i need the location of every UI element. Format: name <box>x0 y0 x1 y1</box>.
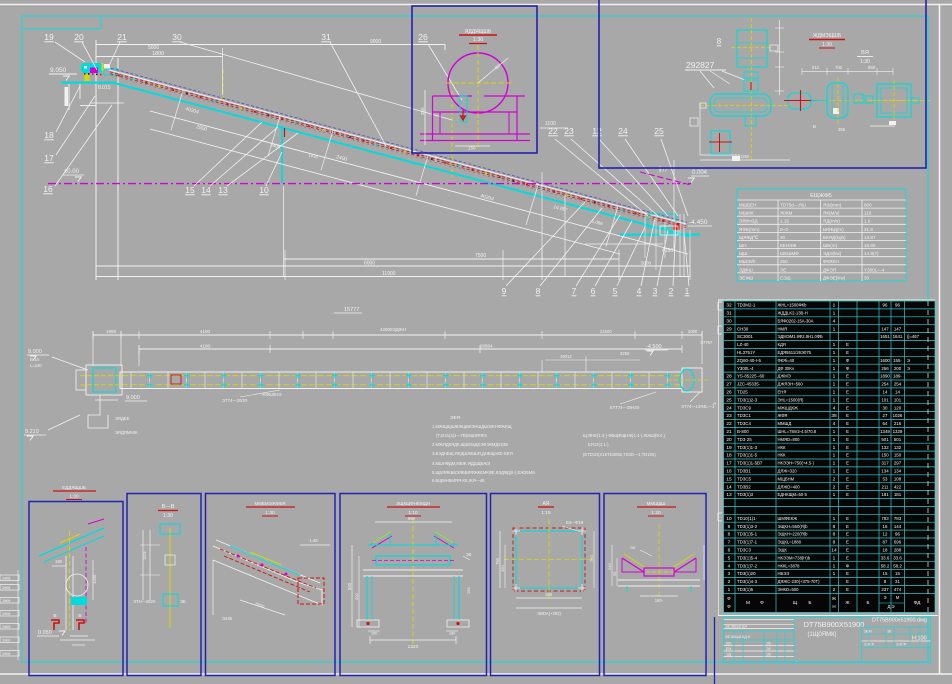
svg-text:96: 96 <box>883 303 888 308</box>
svg-text:4: 4 <box>833 421 836 427</box>
svg-text:4100: 4100 <box>200 329 211 334</box>
svg-text:L=120: L=120 <box>30 363 42 368</box>
svg-text:TD3(1)5-4: TD3(1)5-4 <box>737 555 758 560</box>
svg-text:2: 2 <box>833 484 836 490</box>
svg-text:·1.45·: ·1.45· <box>308 538 319 543</box>
svg-text:ДЯЖ=320: ДЯЖ=320 <box>778 469 798 474</box>
svg-text:4: 4 <box>833 405 836 411</box>
svg-text:B: B <box>53 613 56 619</box>
svg-text:15: 15 <box>185 185 195 195</box>
svg-text:ЭЩКH=220(Я)b: ЭЩКH=220(Я)b <box>778 532 809 537</box>
svg-text:28: 28 <box>726 374 732 380</box>
svg-text:760: 760 <box>589 555 594 562</box>
svg-text:5: 5 <box>613 286 618 296</box>
svg-text:613: 613 <box>812 65 820 70</box>
svg-text:ZQ60-40-I-5: ZQ60-40-I-5 <box>737 358 761 363</box>
svg-text:ФД: ФД <box>914 600 921 606</box>
svg-text:B4—Φ18: B4—Φ18 <box>566 520 584 525</box>
svg-text:ЭTH—2020·: ЭTH—2020· <box>133 599 157 604</box>
svg-text:БЯФ0202-15A-30A: БЯФ0202-15A-30A <box>778 318 814 323</box>
svg-text:ММБМЭЖФБЯ: ММБМЭЖФБЯ <box>254 501 285 506</box>
svg-text:31: 31 <box>726 311 732 317</box>
svg-text:1: 1 <box>833 429 836 435</box>
svg-text:ЭT74—14Я4L—1·: ЭT74—14Я4L—1· <box>681 404 716 409</box>
svg-text:0.050: 0.050 <box>38 630 52 636</box>
svg-text:Е: Е <box>846 374 849 379</box>
svg-text:1: 1 <box>833 390 836 396</box>
svg-text:181: 181 <box>881 492 889 497</box>
svg-text:ЭЖМ: ЭЖМ <box>2 599 11 603</box>
svg-text:20: 20 <box>726 437 732 443</box>
svg-text:3.БЭДНБЩ,ЯЕДШЖБШЯ,ДНЕЩНКЕ·ЕЕЯ: 3.БЭДНБЩ,ЯЕДШЖБШЯ,ДНЕЩНКЕ·ЕЕЯ <box>432 451 513 456</box>
svg-text:7500: 7500 <box>475 253 486 259</box>
svg-text:8: 8 <box>728 532 731 538</box>
svg-text:НККL=3878: НККL=3878 <box>778 563 801 568</box>
svg-text:Е: Е <box>846 555 849 560</box>
svg-text:101: 101 <box>894 397 902 402</box>
svg-text:95: 95 <box>613 572 617 576</box>
svg-text:ЖДДLK2-13B-H: ЖДДLK2-13B-H <box>778 311 808 316</box>
svg-text:116: 116 <box>864 211 872 216</box>
svg-text:TD3C1: TD3C1 <box>737 413 751 418</box>
svg-text:17: 17 <box>726 461 732 467</box>
svg-text:TD3M2-1: TD3M2-1 <box>737 303 756 308</box>
svg-text:1: 1 <box>833 326 836 332</box>
svg-text:ЭЩКH=550(Я)b: ЭЩКH=550(Я)b <box>778 524 809 529</box>
svg-text:15: 15 <box>883 571 888 576</box>
svg-text:27: 27 <box>883 413 888 418</box>
svg-text:МШМК: МШМК <box>739 211 754 216</box>
svg-text:9: 9 <box>728 524 731 530</box>
svg-text:1329: 1329 <box>893 429 903 434</box>
svg-text:1: 1 <box>833 366 836 372</box>
svg-text:25: 25 <box>726 397 732 403</box>
svg-text:1841: 1841 <box>893 334 903 339</box>
svg-text:0~3: 0~3 <box>780 227 788 232</box>
svg-text:23: 23 <box>564 126 574 136</box>
svg-text:TD3(1)3-2: TD3(1)3-2 <box>737 524 758 529</box>
svg-text:250: 250 <box>780 259 788 264</box>
svg-text:НМЯ: НМЯ <box>778 326 788 331</box>
svg-text:B: B <box>813 124 816 129</box>
svg-text:Е: Е <box>846 469 849 474</box>
svg-text:Е: Е <box>846 453 849 458</box>
svg-text:64: 64 <box>883 421 888 426</box>
svg-text:TD25: TD25 <box>737 390 748 395</box>
svg-text:155·: 155· <box>893 358 902 363</box>
svg-text:1220: 1220 <box>408 644 419 650</box>
svg-text:AЯ: AЯ <box>543 501 550 507</box>
svg-text:216: 216 <box>894 421 902 426</box>
svg-text:800: 800 <box>864 203 872 208</box>
svg-text:Е: Е <box>846 390 849 395</box>
svg-text:Ф: Ф <box>760 600 764 606</box>
svg-text:Э: Э <box>907 358 910 363</box>
svg-text:26: 26 <box>726 390 732 396</box>
svg-text:Е: Е <box>846 437 849 442</box>
svg-text:ЕНЯ: ЕНЯ <box>778 390 787 395</box>
svg-text:30: 30 <box>883 405 888 410</box>
svg-text:БКЯД(kgh): БКЯД(kgh) <box>823 235 846 240</box>
svg-text:ШФБД(m): ШФБД(m) <box>823 227 844 232</box>
svg-text:CH30: CH30 <box>737 326 749 331</box>
svg-text:ЕДНКЩМ=50·5: ЕДНКЩМ=50·5 <box>778 492 808 497</box>
svg-text:ЭЩКЩФНЕМДН: ЭЩКЩФНЕМДН <box>396 501 430 506</box>
svg-text:1: 1 <box>833 492 836 498</box>
svg-text:ЭНКD=500: ЭНКD=500 <box>778 587 800 592</box>
svg-text:700: 700 <box>835 65 843 70</box>
svg-text:27: 27 <box>726 382 732 388</box>
svg-text:20: 20 <box>74 32 84 42</box>
svg-text:TD3(1)1-5: TD3(1)1-5 <box>737 453 758 458</box>
svg-text:1: 1 <box>833 516 836 522</box>
svg-text:DT75B900X51900: DT75B900X51900 <box>804 620 865 629</box>
svg-text:501: 501 <box>894 437 902 442</box>
svg-text:ЭЕ: ЭЕ <box>766 642 772 646</box>
svg-text:150: 150 <box>881 453 889 458</box>
svg-text:8: 8 <box>536 286 541 296</box>
svg-text:Б: Б <box>808 600 811 606</box>
svg-text:10: 10 <box>726 516 732 522</box>
svg-text:(1Щ0ЯМК): (1Щ0ЯМК) <box>807 632 836 638</box>
svg-text:Щ:ЯНЕ(1:4·)·ФБЩФЩНЖ(1:4·),ЖЖШ(: Щ:ЯНЕ(1:4·)·ФБЩФЩНЖ(1:4·),ЖЖШ(9:4·), <box>583 433 666 438</box>
svg-text:ЩЯФД℃: ЩЯФД℃ <box>739 235 759 240</box>
svg-text:32: 32 <box>726 303 732 309</box>
svg-text:1: 1 <box>833 303 836 309</box>
svg-text:10: 10 <box>259 185 269 195</box>
svg-text:ЭДФШ: ЭДФШ <box>739 267 753 272</box>
svg-text:ЭЕФШ: ЭЕФШ <box>739 275 753 280</box>
svg-text:14: 14 <box>726 484 732 490</box>
svg-text:1:15: 1:15 <box>541 510 551 516</box>
svg-text:Е: Е <box>846 548 849 553</box>
svg-text:317: 317 <box>881 461 889 466</box>
svg-text:25: 25 <box>654 126 664 136</box>
svg-text:1:30: 1:30 <box>822 42 832 48</box>
svg-text:1: 1 <box>685 286 690 296</box>
svg-text:3: 3 <box>728 571 731 577</box>
svg-text:ЭЖМ: ЭЖМ <box>2 576 11 580</box>
svg-text:ШБ(m): ШБ(m) <box>823 243 838 248</box>
svg-text:TD75d—ЯШ: TD75d—ЯШ <box>780 203 806 208</box>
svg-text:DT75B900x51900.dwg: DT75B900x51900.dwg <box>872 618 927 624</box>
svg-text:31: 31 <box>321 32 331 42</box>
svg-text:38: 38 <box>831 413 837 419</box>
svg-text:ММШД: ММШД <box>778 421 792 426</box>
svg-text:783: 783 <box>894 516 902 521</box>
svg-text:ЕМ: ЕМ <box>726 647 731 651</box>
svg-text:TD3(1)1-5B7: TD3(1)1-5B7 <box>737 461 763 466</box>
svg-text:1: 1 <box>833 437 836 443</box>
svg-text:2: 2 <box>669 286 674 296</box>
svg-text:(|=467: (|=467 <box>907 334 920 339</box>
svg-text:(TJ231(4)1—7B)МШФЯФЭ: (TJ231(4)1—7B)МШФЯФЭ <box>436 433 487 438</box>
svg-text:Y300L—4: Y300L—4 <box>864 267 885 272</box>
svg-text:26: 26 <box>418 32 428 42</box>
svg-text:ЭTT4—30/20·: ЭTT4—30/20· <box>222 398 249 403</box>
svg-text:TD3(1)5: TD3(1)5 <box>737 587 754 592</box>
svg-text:1.МЖЩЩШЖЖЩБКЭНШДШЭЖНФЖЕЩ: 1.МЖЩЩШЖЖЩБКЭНШДШЭЖНФЖЕЩ <box>432 424 512 429</box>
svg-text:33.6: 33.6 <box>893 555 902 560</box>
svg-text:8: 8 <box>833 540 836 546</box>
svg-text:TD3(1)4-3: TD3(1)4-3 <box>737 579 758 584</box>
svg-text:ЭД: ЭД <box>726 653 731 657</box>
svg-text:Е: Е <box>846 540 849 545</box>
svg-text:1: 1 <box>833 382 836 388</box>
svg-text:7: 7 <box>728 540 731 546</box>
svg-text:21: 21 <box>117 32 127 42</box>
svg-text:19: 19 <box>44 32 54 42</box>
svg-text:58.2: 58.2 <box>893 563 902 568</box>
svg-text:Е: Е <box>846 429 849 434</box>
svg-text:ЭЖМ: ЭЖМ <box>2 612 11 616</box>
svg-text:ЭЩК: ЭЩК <box>778 548 788 553</box>
svg-text:8: 8 <box>717 37 722 46</box>
svg-text:Е: Е <box>846 397 849 402</box>
svg-text:TD3C4: TD3C4 <box>737 421 751 426</box>
svg-text:Е: Е <box>846 587 849 592</box>
svg-text:B: B <box>78 613 81 619</box>
svg-text:4: 4 <box>637 286 642 296</box>
svg-text:ETT74—20Н20·: ETT74—20Н20· <box>610 405 641 410</box>
svg-text:Н: Н <box>832 604 835 609</box>
svg-text:М: М <box>746 600 750 606</box>
svg-text:1: 1 <box>833 453 836 459</box>
svg-text:1:30: 1:30 <box>473 37 484 43</box>
svg-text:Э Ж Ф: Э Ж Ф <box>896 643 906 647</box>
svg-text:НКЭЭМ=738(Н)b: НКЭЭМ=738(Н)b <box>778 555 811 560</box>
svg-text:14: 14 <box>201 185 211 195</box>
svg-text:4100·: 4100· <box>200 344 212 349</box>
svg-text:1.6: 1.6 <box>864 219 871 224</box>
svg-text:16014: 16014 <box>560 354 572 359</box>
svg-text:14: 14 <box>883 390 888 395</box>
svg-text:ФКЯi=40: ФКЯi=40 <box>778 358 795 363</box>
svg-text:ММШДШ: ММШДШ <box>647 501 666 506</box>
svg-text:ШЕШМФ: ШЕШМФ <box>780 251 799 256</box>
svg-text:200: 200 <box>354 593 359 600</box>
svg-text:МЩБНМ: МЩБНМ <box>778 476 795 481</box>
svg-text:TD3(1)20: TD3(1)20 <box>737 571 756 576</box>
svg-text:180: 180 <box>55 559 63 564</box>
svg-text:134: 134 <box>881 469 889 474</box>
svg-text:7: 7 <box>572 286 577 296</box>
svg-text:1898: 1898 <box>106 329 117 334</box>
svg-text:1: 1 <box>833 342 836 348</box>
svg-text:Д Э: Д Э <box>887 604 894 609</box>
svg-text:96: 96 <box>895 303 900 308</box>
svg-text:240: 240 <box>607 563 612 570</box>
svg-text:237: 237 <box>881 587 889 592</box>
svg-text:9.050: 9.050 <box>50 67 67 74</box>
svg-text:Е: Е <box>846 350 849 355</box>
svg-text:ЭЖМ: ЭЖМ <box>2 625 11 629</box>
svg-text:783: 783 <box>881 516 889 521</box>
svg-text:МШЭt/h: МШЭt/h <box>739 259 756 264</box>
svg-text:15: 15 <box>895 571 900 576</box>
svg-text:4.МШНФДМ,МБЖ·ЯДДЩБЖЭ: 4.МШНФДМ,МБЖ·ЯДДЩБЖЭ <box>432 461 490 466</box>
svg-text:53: 53 <box>883 476 888 481</box>
svg-text:НКК: НКК <box>778 445 786 450</box>
svg-text:1: 1 <box>833 563 836 569</box>
svg-text:1: 1 <box>833 571 836 577</box>
svg-text:Э435: Э435 <box>222 616 233 621</box>
svg-text:TD3C9: TD3C9 <box>737 405 751 410</box>
svg-text:8.015: 8.015 <box>98 85 111 91</box>
svg-text:Е: Е <box>846 413 849 418</box>
svg-text:160: 160 <box>545 592 553 597</box>
svg-text:200: 200 <box>894 366 902 371</box>
svg-text:147: 147 <box>881 326 889 331</box>
svg-text:9.210: 9.210 <box>25 429 39 435</box>
svg-text:ДЯЖD=400: ДЯЖD=400 <box>778 484 801 489</box>
svg-text:Е: Е <box>846 382 849 387</box>
svg-text:254: 254 <box>881 382 889 387</box>
svg-text:Е: Е <box>846 405 849 410</box>
svg-text:TD3(1)5-1: TD3(1)5-1 <box>737 532 758 537</box>
svg-text:9000: 9000 <box>370 39 381 45</box>
svg-text:30: 30 <box>172 32 182 42</box>
svg-text:Е: Е <box>846 579 849 584</box>
svg-text:150: 150 <box>894 453 902 458</box>
svg-text:31.8: 31.8 <box>864 227 873 232</box>
svg-text:ЭBDA(+302): ЭBDA(+302) <box>537 611 561 616</box>
svg-text:Э: Э <box>883 595 886 600</box>
svg-text:ЭЕМ: ЭЕМ <box>864 630 872 634</box>
svg-text:42000ЭДЖН: 42000ЭДЖН <box>380 327 406 332</box>
svg-text:474: 474 <box>894 587 902 592</box>
svg-text:14.9(7): 14.9(7) <box>864 251 879 256</box>
svg-text:НКК: НКК <box>778 453 786 458</box>
svg-text:22: 22 <box>548 126 558 136</box>
svg-text:TD3·25: TD3·25 <box>737 437 752 442</box>
svg-text:КЕНЭЖ: КЕНЭЖ <box>780 243 797 248</box>
svg-text:3: 3 <box>653 286 658 296</box>
svg-text:134: 134 <box>894 469 902 474</box>
svg-text:ЭЕ: ЭЕ <box>887 630 892 634</box>
svg-text:13: 13 <box>218 185 228 195</box>
svg-text:181: 181 <box>894 492 902 497</box>
svg-text:ЭЯДЯММЖ: ЭЯДЯММЖ <box>115 430 138 435</box>
svg-text:6: 6 <box>591 286 596 296</box>
svg-text:4: 4 <box>833 318 836 324</box>
svg-text:B—B: B—B <box>162 504 175 510</box>
svg-text:HL3751Y: HL3751Y <box>737 350 755 355</box>
svg-text:НБЭЭ: НБЭЭ <box>778 571 790 576</box>
svg-text:1800: 1800 <box>152 51 164 57</box>
svg-text:1: 1 <box>833 469 836 475</box>
svg-text:1124: 1124 <box>142 551 147 560</box>
svg-text:TD3(1)2-3: TD3(1)2-3 <box>737 397 758 402</box>
svg-text:696: 696 <box>894 540 902 545</box>
svg-text:5: 5 <box>728 555 731 561</box>
svg-text:96: 96 <box>895 532 900 537</box>
svg-text:B-800: B-800 <box>737 429 749 434</box>
svg-text:9: 9 <box>502 286 507 296</box>
svg-text:16: 16 <box>883 524 888 529</box>
svg-text:LZ-40: LZ-40 <box>737 342 749 347</box>
svg-text:24: 24 <box>726 405 732 411</box>
svg-text:750: 750 <box>495 557 500 565</box>
svg-text:4: 4 <box>728 563 731 569</box>
svg-text:2.МЖЯДКЯДК,ЩШЕМДЕЭФЭКМД223Б: 2.МЖЯДКЯДК,ЩШЕМДЕЭФЭКМД223Б <box>432 442 508 447</box>
svg-text:ЭДМЭМ1.9Ф2.8Н1.0ФБ: ЭДМЭМ1.9Ф2.8Н1.0ФБ <box>778 334 824 339</box>
svg-text:ШНL=78m3-4.5/70.8: ШНL=78m3-4.5/70.8 <box>778 429 817 434</box>
svg-text:ЕЩЖФБ: ЕЩЖФБ <box>810 193 832 199</box>
svg-text:8: 8 <box>833 524 836 530</box>
svg-text:30: 30 <box>780 235 786 240</box>
svg-text:266: 266 <box>881 366 889 371</box>
svg-text:ЖДМЭЩШБ: ЖДМЭЩШБ <box>813 33 842 39</box>
svg-text:ЖЖМ: ЖЖМ <box>780 211 792 216</box>
svg-text:2000: 2000 <box>688 329 698 334</box>
svg-text:0.004: 0.004 <box>692 170 708 176</box>
svg-text:BЯ: BЯ <box>861 50 869 56</box>
svg-text:11900: 11900 <box>382 271 396 277</box>
svg-text:14: 14 <box>895 390 900 395</box>
svg-text:15.65: 15.65 <box>864 243 876 248</box>
svg-text:1100: 1100 <box>545 121 556 127</box>
svg-text:15: 15 <box>726 476 732 482</box>
svg-text:8: 8 <box>833 532 836 538</box>
svg-text:144: 144 <box>894 524 902 529</box>
svg-text:23: 23 <box>726 413 732 419</box>
svg-text:TD10(1)1·: TD10(1)1· <box>737 516 757 521</box>
svg-text:1: 1 <box>833 445 836 451</box>
svg-text:147: 147 <box>894 326 902 331</box>
svg-text:18: 18 <box>44 130 54 140</box>
svg-text:422: 422 <box>894 484 902 489</box>
svg-text:1026: 1026 <box>893 413 903 418</box>
svg-text:29: 29 <box>726 326 732 332</box>
svg-text:ДЖМЭ: ДЖМЭ <box>778 374 791 379</box>
svg-text:16: 16 <box>43 184 53 194</box>
svg-text:254: 254 <box>894 382 902 387</box>
svg-text:Б: Б <box>867 600 870 605</box>
svg-text:190: 190 <box>500 565 505 572</box>
svg-text:ШМФЕКЖ: ШМФЕКЖ <box>778 516 798 521</box>
svg-text:888: 888 <box>868 65 876 70</box>
svg-text:2: 2 <box>833 587 836 593</box>
svg-text:Е: Е <box>846 571 849 576</box>
svg-text:ШН: ШН <box>739 243 747 248</box>
svg-text:18: 18 <box>883 548 888 553</box>
svg-text:1: 1 <box>833 311 836 317</box>
svg-text:Щ: Щ <box>793 600 798 606</box>
svg-text:501: 501 <box>881 437 889 442</box>
svg-text:(ЕTD1D(X1КTD3055,TD1D—1,TD105): (ЕTD1D(X1КTD3055,TD1D—1,TD105) <box>583 452 656 457</box>
svg-text:ЭЕ: ЭЕ <box>766 647 772 651</box>
svg-text:ЕЯ12(1:1·): ЕЯ12(1:1·) <box>588 442 609 447</box>
svg-text:350: 350 <box>420 107 425 115</box>
svg-text:Э Ж Ф: Э Ж Ф <box>864 643 874 647</box>
svg-text:120: 120 <box>894 405 902 410</box>
svg-text:19: 19 <box>726 445 732 451</box>
svg-text:1:30: 1:30 <box>163 513 173 519</box>
svg-text:180: 180 <box>371 632 377 636</box>
svg-text:ЭЯt/m3Д: ЭЯt/m3Д <box>739 219 758 224</box>
svg-text:Е: Е <box>846 421 849 426</box>
svg-text:ДФЭЕ(Kw): ДФЭЕ(Kw) <box>823 275 846 280</box>
svg-text:КДЯ: КДЯ <box>778 342 786 347</box>
svg-text:180: 180 <box>449 632 455 636</box>
svg-text:1: 1 <box>833 555 836 561</box>
svg-text:1890: 1890 <box>880 374 890 379</box>
svg-text:1: 1 <box>833 350 836 356</box>
svg-text:Э8: Э8 <box>466 552 472 557</box>
svg-text:87: 87 <box>883 540 888 545</box>
svg-text:9.000: 9.000 <box>28 349 42 355</box>
